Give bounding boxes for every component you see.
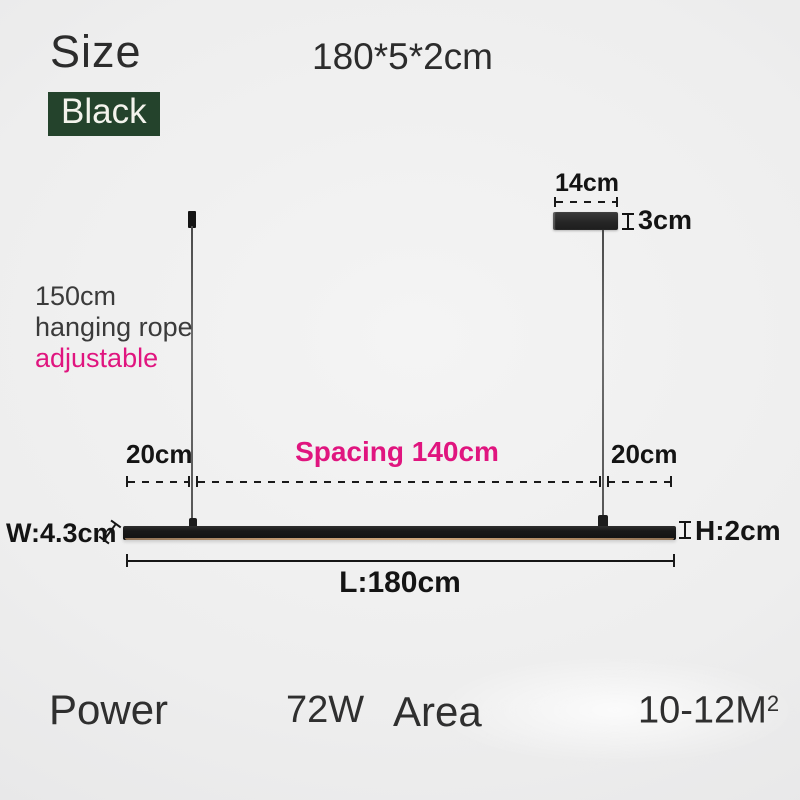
canopy-width-measure-line <box>556 201 618 203</box>
hanging-rope-left <box>191 226 193 527</box>
measure-tick-icon <box>126 554 128 567</box>
size-heading: Size <box>50 26 142 78</box>
spacing-right-label: 20cm <box>611 439 678 470</box>
rope-info: 150cm hanging rope adjustable <box>35 281 193 374</box>
spacing-center-label: Spacing 140cm <box>247 436 547 468</box>
area-label: Area <box>393 688 482 736</box>
measure-tick-icon <box>616 197 618 207</box>
measure-tick-icon <box>599 476 601 487</box>
power-value: 72W <box>286 689 364 732</box>
rope-length-label: 150cm <box>35 281 193 312</box>
canopy-height-label: 3cm <box>638 205 692 236</box>
lamp-bar <box>123 526 676 540</box>
length-measure-line <box>126 560 675 562</box>
fixture-length-label: L:180cm <box>300 566 500 600</box>
spacing-measure-line <box>608 481 670 483</box>
rope-adjustable-label: adjustable <box>35 343 193 374</box>
rope-type-label: hanging rope <box>35 312 193 343</box>
lamp-light-strip <box>125 538 674 540</box>
fixture-height-label: H:2cm <box>695 515 781 547</box>
measure-tick-icon <box>607 476 609 487</box>
ceiling-canopy <box>553 212 618 230</box>
measure-tick-icon <box>196 476 198 487</box>
canopy-width-label: 14cm <box>548 169 626 198</box>
power-label: Power <box>49 686 168 734</box>
measure-tick-icon <box>673 554 675 567</box>
height-measure-icon <box>622 213 634 230</box>
color-option-badge: Black <box>48 92 160 136</box>
measure-tick-icon <box>670 476 672 487</box>
area-value-number: 10-12M <box>638 690 767 732</box>
spacing-measure-line <box>128 481 189 483</box>
spacing-left-label: 20cm <box>126 439 193 470</box>
area-value-exponent: 2 <box>767 691 779 716</box>
spacing-measure-line <box>198 481 600 483</box>
measure-tick-icon <box>554 197 556 207</box>
height-measure-icon <box>679 521 691 539</box>
product-spec-diagram: Size 180*5*2cm Black 14cm 3cm 150cm hang… <box>0 0 800 800</box>
hanging-rope-right <box>602 230 604 520</box>
measure-tick-icon <box>126 476 128 487</box>
area-value: 10-12M2 <box>638 689 779 733</box>
size-value: 180*5*2cm <box>312 36 493 78</box>
measure-tick-icon <box>188 476 190 487</box>
